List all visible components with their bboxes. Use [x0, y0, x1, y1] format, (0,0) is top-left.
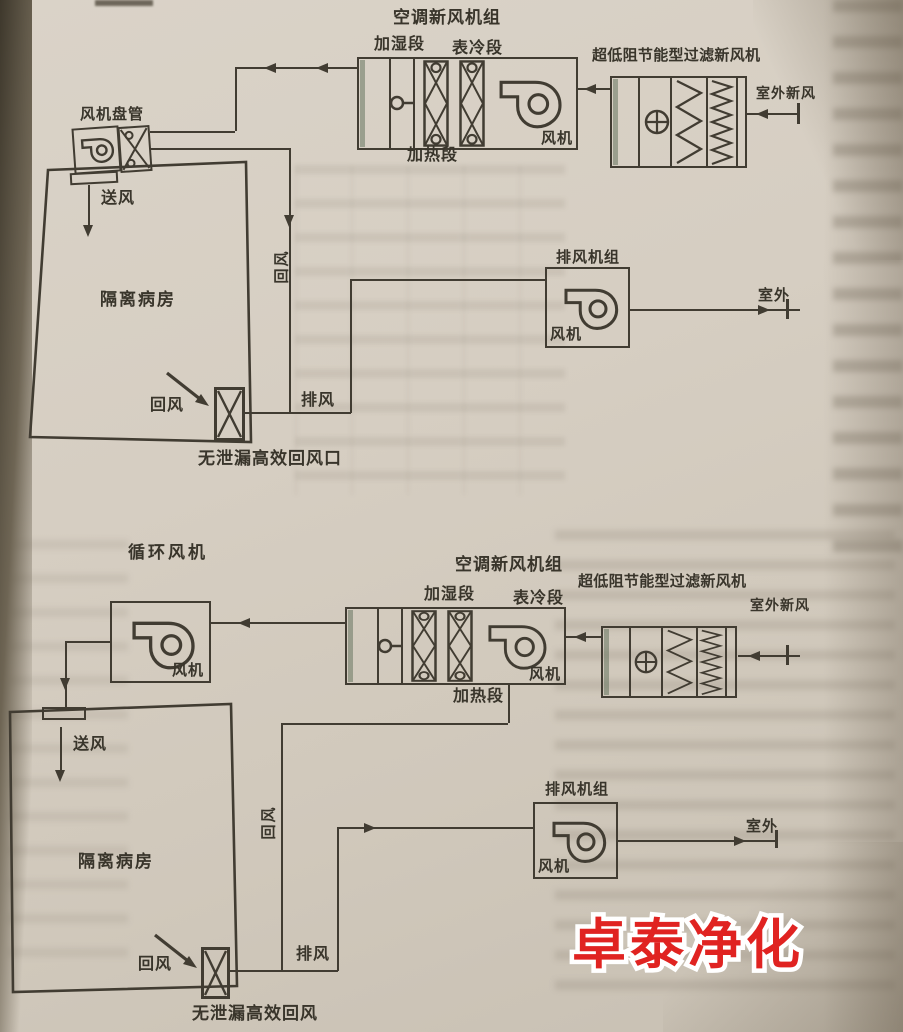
heating-section-label: 加热段 — [407, 147, 458, 165]
outdoor-label: 室外 — [746, 818, 778, 835]
filter-unit — [610, 76, 747, 168]
humidifier-section-label: 加湿段 — [374, 36, 425, 54]
cooling-coil-icon — [459, 60, 485, 147]
book-page-photo: 空调新风机组 加湿段 表冷段 — [0, 0, 903, 1032]
return-collector-duct — [230, 970, 338, 972]
exhaust-duct — [352, 279, 546, 281]
return-air-arrow — [150, 930, 202, 974]
hepa-return-outlet — [214, 387, 245, 441]
flow-arrow-left — [756, 109, 768, 119]
humidifier-nozzle-icon — [389, 93, 415, 113]
supply-duct — [235, 67, 357, 69]
exhaust-duct — [350, 279, 352, 413]
heating-section-label: 加热段 — [453, 688, 504, 706]
ahu-unit: 风机 — [357, 57, 578, 150]
duct-to-outdoor — [618, 840, 778, 842]
cooling-section-label: 表冷段 — [513, 590, 564, 608]
heating-coil-icon — [411, 610, 437, 682]
exhaust-fan-label: 风机 — [538, 858, 570, 875]
return-air-arrow — [162, 368, 214, 412]
exhaust-air-label: 排风 — [301, 392, 335, 410]
cooling-section-label: 表冷段 — [452, 40, 503, 58]
flange-mark — [360, 60, 365, 147]
exhaust-unit-title: 排风机组 — [545, 781, 609, 798]
return-duct-label: 回风 — [258, 802, 279, 844]
flow-arrow-left — [316, 63, 328, 73]
ahu-unit: 风机 — [345, 607, 566, 685]
hepa-return-outlet — [201, 947, 230, 999]
flow-arrow-right — [758, 305, 770, 315]
exhaust-fan-unit: 风机 — [533, 802, 618, 879]
section-divider — [638, 78, 640, 166]
supply-duct — [211, 622, 345, 624]
flange-mark — [604, 629, 609, 695]
circulation-fan-title: 循环风机 — [128, 543, 208, 563]
return-outlet-label: 无泄漏高效回风口 — [198, 449, 342, 469]
flow-arrow-right — [734, 836, 746, 846]
filter-unit-title: 超低阻节能型过滤新风机 — [578, 573, 746, 590]
ahu-fan-label: 风机 — [541, 130, 573, 147]
flow-arrow-left — [238, 618, 250, 628]
x-cross-icon — [217, 390, 242, 438]
duct-to-outdoor — [630, 309, 800, 311]
outdoor-fresh-air-label: 室外新风 — [750, 597, 810, 613]
exhaust-fan-label: 风机 — [550, 326, 582, 343]
exhaust-unit-title: 排风机组 — [556, 249, 620, 266]
humidifier-section-label: 加湿段 — [424, 586, 475, 604]
ahu-fan-label: 风机 — [529, 666, 561, 683]
flow-arrow-left — [264, 63, 276, 73]
flow-arrow-right — [364, 823, 376, 833]
section-divider — [629, 628, 631, 696]
fan-coil-title: 风机盘管 — [80, 106, 144, 123]
exhaust-air-label: 排风 — [296, 946, 330, 964]
circulation-fan-unit: 风机 — [110, 601, 211, 683]
circle-plus-icon — [643, 108, 671, 136]
supply-duct — [235, 67, 237, 131]
heating-coil-icon — [423, 60, 449, 147]
return-duct — [281, 723, 283, 971]
return-duct — [150, 148, 289, 150]
circle-plus-icon — [633, 649, 659, 675]
exhaust-fan-unit: 风机 — [545, 267, 630, 348]
filter-unit — [601, 626, 737, 698]
return-outlet-label: 无泄漏高效回风 — [192, 1004, 318, 1024]
centrifugal-fan-icon — [491, 72, 567, 134]
flow-arrow-left — [748, 651, 760, 661]
outdoor-fresh-air-label: 室外新风 — [756, 85, 816, 101]
return-duct — [508, 685, 510, 723]
room-label: 隔离病房 — [78, 852, 154, 872]
flow-arrow-left — [574, 632, 586, 642]
room-label: 隔离病房 — [100, 290, 176, 310]
flange-mark — [348, 610, 353, 682]
exhaust-duct — [337, 827, 339, 971]
section-divider — [725, 628, 727, 696]
flange-mark — [613, 79, 618, 165]
x-cross-icon — [204, 950, 227, 996]
flow-arrow-down — [60, 678, 70, 690]
return-collector-duct — [245, 412, 351, 414]
fine-filter-zigzag-icon — [698, 629, 725, 695]
return-duct — [281, 723, 508, 725]
outdoor-label: 室外 — [758, 287, 790, 304]
watermark-text: 卓泰净化 — [572, 910, 804, 980]
page-right-shadow — [823, 0, 903, 1032]
page-top-right-shadow — [753, 0, 903, 260]
coarse-filter-zigzag-icon — [663, 629, 696, 695]
cooling-coil-icon — [447, 610, 473, 682]
humidifier-nozzle-icon — [377, 636, 403, 656]
duct-outdoor-to-filter — [747, 113, 800, 115]
filter-unit-title: 超低阻节能型过滤新风机 — [592, 47, 760, 64]
bleed-through-right-column — [833, 0, 903, 560]
flow-arrow-down — [284, 215, 294, 227]
supply-duct — [65, 641, 110, 643]
ahu-title: 空调新风机组 — [393, 8, 501, 28]
coarse-filter-zigzag-icon — [672, 79, 706, 165]
bleed-through-table — [295, 165, 565, 495]
ahu-title: 空调新风机组 — [455, 555, 563, 575]
fine-filter-zigzag-icon — [708, 79, 736, 165]
section-divider — [736, 78, 738, 166]
duct-end-tick — [786, 645, 789, 665]
flow-arrow-left — [584, 84, 596, 94]
page-top-edge-mark — [95, 0, 153, 6]
supply-duct — [150, 131, 235, 133]
duct-end-tick — [797, 103, 800, 124]
watermark: 卓泰净化 卓泰净化 — [572, 910, 822, 982]
return-duct-label: 回风 — [271, 246, 292, 288]
circulation-fan-label: 风机 — [172, 662, 204, 679]
